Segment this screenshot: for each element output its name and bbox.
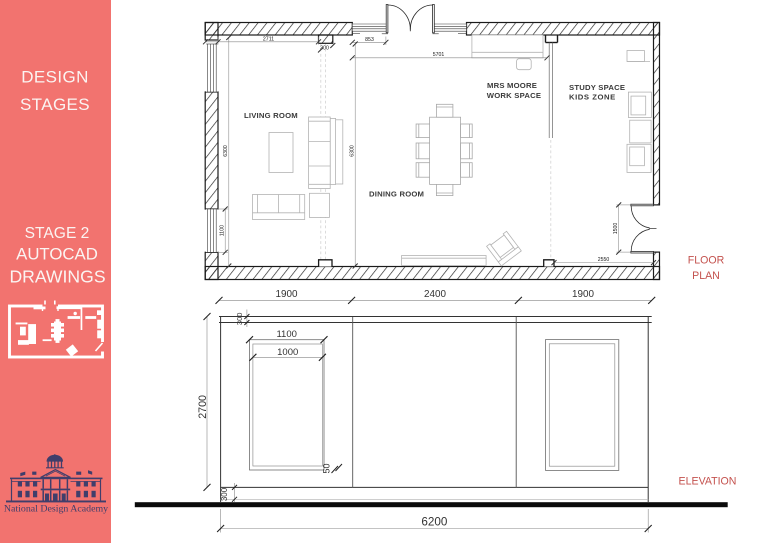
svg-text:DRAWINGS: DRAWINGS <box>9 266 105 286</box>
svg-text:STUDY SPACE: STUDY SPACE <box>569 83 625 92</box>
svg-text:DESIGN: DESIGN <box>21 68 89 87</box>
svg-text:National Design Academy: National Design Academy <box>4 504 108 515</box>
svg-text:300: 300 <box>320 45 329 51</box>
svg-text:1500: 1500 <box>613 223 619 235</box>
svg-text:STAGE 2: STAGE 2 <box>25 225 90 242</box>
svg-text:AUTOCAD: AUTOCAD <box>16 244 98 263</box>
svg-text:DINING ROOM: DINING ROOM <box>369 190 424 199</box>
svg-text:1900: 1900 <box>572 289 594 300</box>
svg-text:853: 853 <box>365 37 374 43</box>
svg-text:PLAN: PLAN <box>692 270 720 282</box>
svg-text:2550: 2550 <box>598 257 610 263</box>
svg-text:6300: 6300 <box>223 145 229 157</box>
svg-text:6200: 6200 <box>421 515 448 528</box>
svg-text:1100: 1100 <box>220 225 226 236</box>
svg-text:1900: 1900 <box>276 289 298 300</box>
svg-text:6300: 6300 <box>350 145 356 157</box>
svg-text:WORK SPACE: WORK SPACE <box>487 91 541 100</box>
svg-text:2711: 2711 <box>263 37 274 43</box>
svg-text:MRS MOORE: MRS MOORE <box>487 81 537 90</box>
svg-text:2700: 2700 <box>197 395 209 419</box>
svg-text:1100: 1100 <box>276 329 296 340</box>
svg-text:2400: 2400 <box>424 289 446 300</box>
svg-text:ELEVATION: ELEVATION <box>679 476 737 488</box>
svg-text:1000: 1000 <box>277 347 298 358</box>
svg-text:LIVING ROOM: LIVING ROOM <box>244 111 298 120</box>
svg-text:FLOOR: FLOOR <box>688 255 725 267</box>
svg-text:50: 50 <box>322 463 332 473</box>
svg-text:KIDS ZONE: KIDS ZONE <box>569 93 616 102</box>
svg-text:STAGES: STAGES <box>20 95 90 114</box>
svg-text:300: 300 <box>235 313 244 326</box>
svg-text:5701: 5701 <box>433 52 445 58</box>
svg-text:300: 300 <box>220 487 229 501</box>
